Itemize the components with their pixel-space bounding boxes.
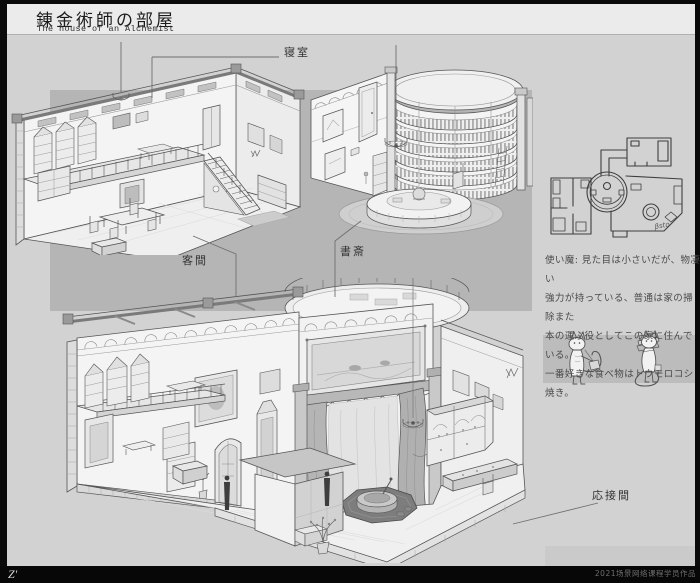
label-guest-room: 客間 (182, 252, 208, 268)
description-line: 強力が持っている、普通は家の掃除また (545, 289, 700, 327)
description-line: 使い魔: 見た目は小さいだが、物凄い (545, 251, 700, 289)
page-subtitle: The house of an Alchemist (37, 24, 175, 34)
description-line: 一番好きな食べ物はトウモロコシ焼き。 (545, 365, 700, 403)
drawing-study (303, 58, 533, 238)
description-line: 本の運ぶ役としてこの家に住んでいる。 (545, 327, 700, 365)
artist-mark: Z' (8, 567, 17, 582)
plan-signature: βsto (654, 220, 670, 231)
label-bedroom: 寝室 (284, 44, 310, 60)
bottom-right-strip (545, 546, 695, 566)
label-reception-room: 応接間 (592, 487, 631, 503)
drawing-guestroom-bedroom (8, 57, 308, 255)
course-credit: 2021场景网络课程学员作品 (595, 568, 696, 579)
label-study: 書斎 (340, 243, 366, 259)
floor-plan-sketch: βsto (543, 128, 695, 240)
artboard: 錬金術師の部屋 The house of an Alchemist (0, 0, 700, 583)
drawing-reception-hall (55, 278, 527, 563)
familiar-description: 使い魔: 見た目は小さいだが、物凄い 強力が持っている、普通は家の掃除また 本の… (545, 251, 700, 403)
